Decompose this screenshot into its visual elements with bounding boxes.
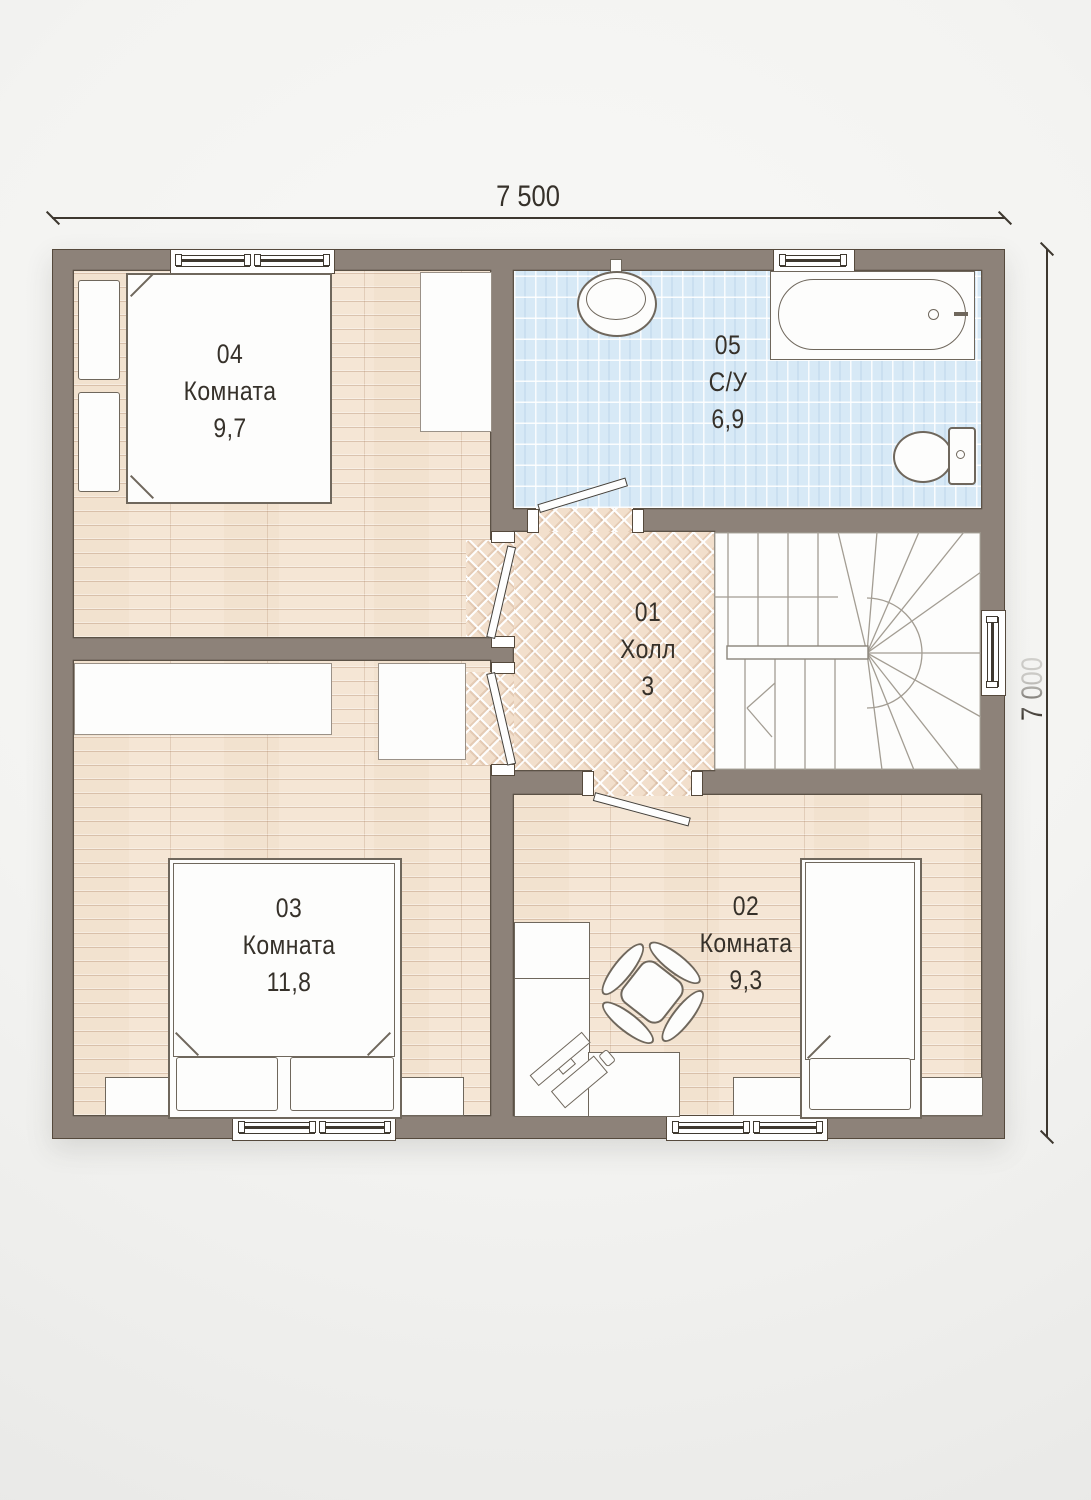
staircase (714, 532, 981, 770)
pillow (78, 280, 120, 380)
door-jamb (527, 509, 539, 533)
room-number: 04 (145, 336, 315, 373)
room-name: Комната (145, 373, 315, 410)
pillow (809, 1058, 911, 1110)
room-area: 11,8 (204, 964, 374, 1001)
room-area: 9,7 (145, 410, 315, 447)
nightstand (398, 1077, 464, 1116)
wardrobe (74, 663, 332, 735)
room-02-label: 02 Комната 9,3 (661, 888, 831, 999)
room-04-label: 04 Комната 9,7 (145, 336, 315, 447)
room-number: 01 (563, 594, 733, 631)
floor-plan: 7 500 7 000 (0, 0, 1091, 1500)
dimension-width-label: 7 500 (443, 180, 613, 214)
room-name: С/У (643, 364, 813, 401)
door-jamb (632, 509, 644, 533)
room-number: 03 (204, 890, 374, 927)
room-area: 6,9 (643, 401, 813, 438)
room-02-doorway (592, 770, 692, 796)
door-jamb (491, 764, 515, 776)
door-jamb (582, 771, 594, 796)
nightstand (920, 1077, 983, 1116)
room-area: 3 (563, 668, 733, 705)
pillow (290, 1057, 394, 1111)
nightstand (105, 1077, 172, 1116)
nightstand (733, 1077, 802, 1116)
room-number: 02 (661, 888, 831, 925)
room-03-label: 03 Комната 11,8 (204, 890, 374, 1001)
hall-label: 01 Холл 3 (563, 594, 733, 705)
window-stairs (981, 610, 1006, 696)
pillow (176, 1057, 278, 1111)
wardrobe (378, 663, 466, 760)
room-name: Комната (204, 927, 374, 964)
door-jamb (491, 531, 515, 543)
dimension-height-label: 7 000 (1016, 604, 1050, 774)
door-jamb (691, 771, 703, 796)
room-number: 05 (643, 327, 813, 364)
toilet (893, 427, 977, 485)
bathroom-label: 05 С/У 6,9 (643, 327, 813, 438)
room-area: 9,3 (661, 962, 831, 999)
room-name: Холл (563, 631, 733, 668)
wardrobe (420, 272, 492, 432)
window-room-04 (170, 249, 335, 274)
room-name: Комната (661, 925, 831, 962)
bathroom-doorway (536, 508, 633, 532)
dimension-width-line (52, 217, 1005, 219)
pillow (78, 392, 120, 492)
wardrobe (514, 922, 590, 980)
